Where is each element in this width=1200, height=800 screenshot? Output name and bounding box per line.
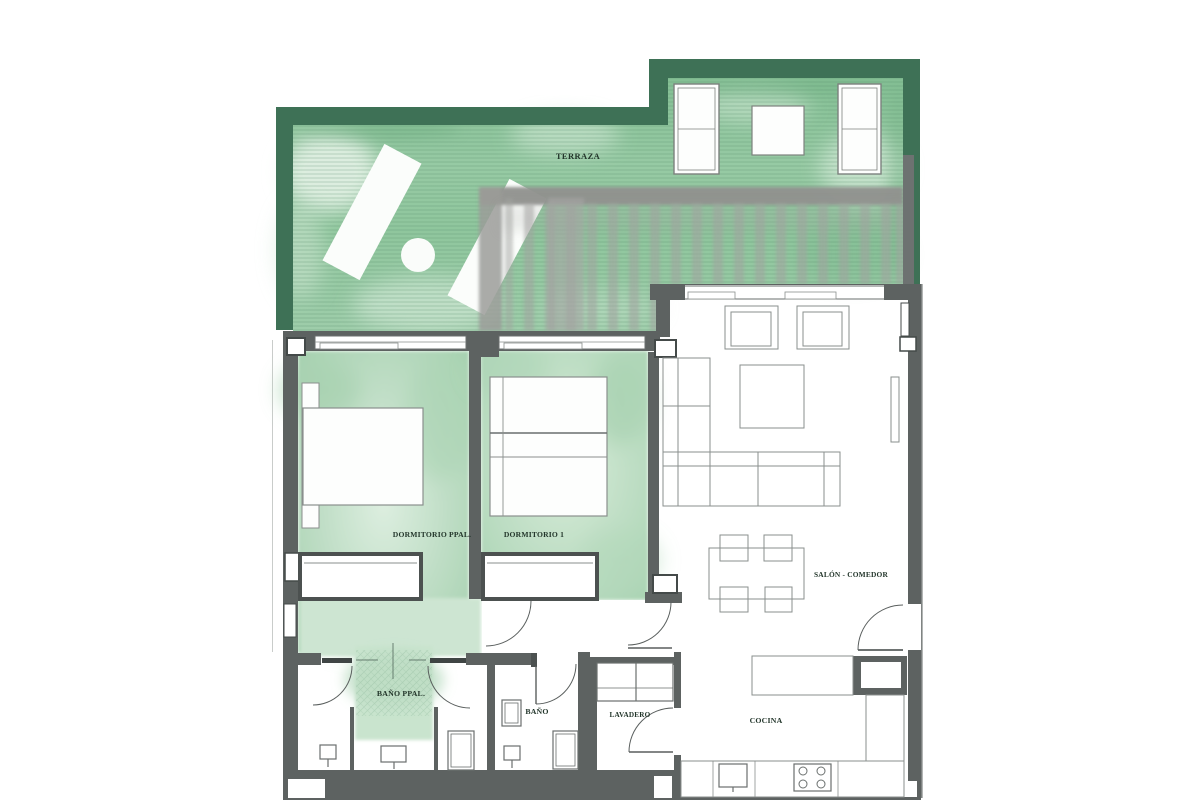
svg-text:BAÑO PPAL.: BAÑO PPAL.	[377, 689, 425, 698]
svg-text:BAÑO: BAÑO	[525, 707, 548, 716]
svg-text:DORMITORIO 1: DORMITORIO 1	[504, 530, 564, 539]
svg-text:DORMITORIO PPAL.: DORMITORIO PPAL.	[393, 530, 471, 539]
svg-text:LAVADERO: LAVADERO	[610, 711, 651, 719]
svg-text:TERRAZA: TERRAZA	[556, 151, 601, 161]
svg-text:SALÓN - COMEDOR: SALÓN - COMEDOR	[814, 569, 888, 579]
svg-text:COCINA: COCINA	[750, 716, 783, 725]
